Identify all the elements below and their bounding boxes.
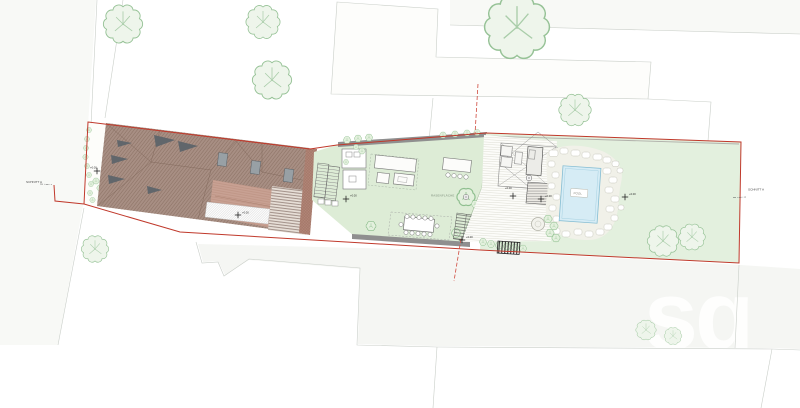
tree-icon (485, 0, 550, 58)
tree-icon (647, 226, 678, 256)
elevation-label: +0.00 (505, 186, 512, 190)
tree-icon (103, 5, 142, 43)
lounger (501, 146, 513, 157)
elevation-label: +0.00 (466, 235, 473, 239)
daybed (526, 147, 543, 176)
skylight (217, 153, 228, 167)
tree-icon (246, 5, 280, 38)
plant-icon (359, 148, 365, 154)
tree-icon (636, 320, 656, 340)
pool-label: POOL (573, 191, 582, 196)
tree-icon (252, 61, 291, 99)
elevation-label: +0.00 (242, 211, 249, 215)
fire-pit (532, 218, 545, 231)
right-garden: POOL (462, 132, 741, 263)
tree-icon (664, 327, 682, 344)
elevation-label: +0.00 (350, 194, 357, 198)
tree-icon (559, 94, 591, 125)
terrace-steps-grid (497, 241, 520, 255)
side-table (515, 152, 523, 164)
tree-icon (81, 236, 108, 262)
tree-icon (679, 224, 706, 250)
section-label-left: SCHNITT A (26, 180, 43, 184)
bush-icon (366, 221, 376, 230)
section-label-right: SCHNITT A (748, 188, 765, 192)
site-plan-canvas: sq (0, 0, 800, 408)
lounger (501, 157, 513, 168)
garden-stairs (314, 163, 340, 201)
plant-icon (343, 159, 348, 164)
utility-rooms (342, 144, 366, 189)
skylight (250, 161, 261, 175)
swimming-pool: POOL (559, 166, 601, 224)
plant-icon (353, 144, 358, 149)
elevation-label: +0.00 (545, 194, 552, 198)
elevation-label: +0.00 (629, 192, 636, 196)
skylight (283, 169, 294, 183)
utility-room (343, 170, 366, 189)
bar-table (442, 158, 471, 173)
armchair (377, 172, 390, 183)
site-plan-drawing: sq (0, 0, 800, 408)
terrace-steps (497, 241, 520, 255)
round-table (526, 175, 532, 181)
lawn-label: RASENFLÄCHE (431, 194, 455, 198)
watermark-text: sq (644, 261, 751, 370)
elevation-label: +0.00 (90, 166, 97, 170)
tree-trunk (463, 194, 468, 199)
coffee-table (393, 173, 414, 186)
